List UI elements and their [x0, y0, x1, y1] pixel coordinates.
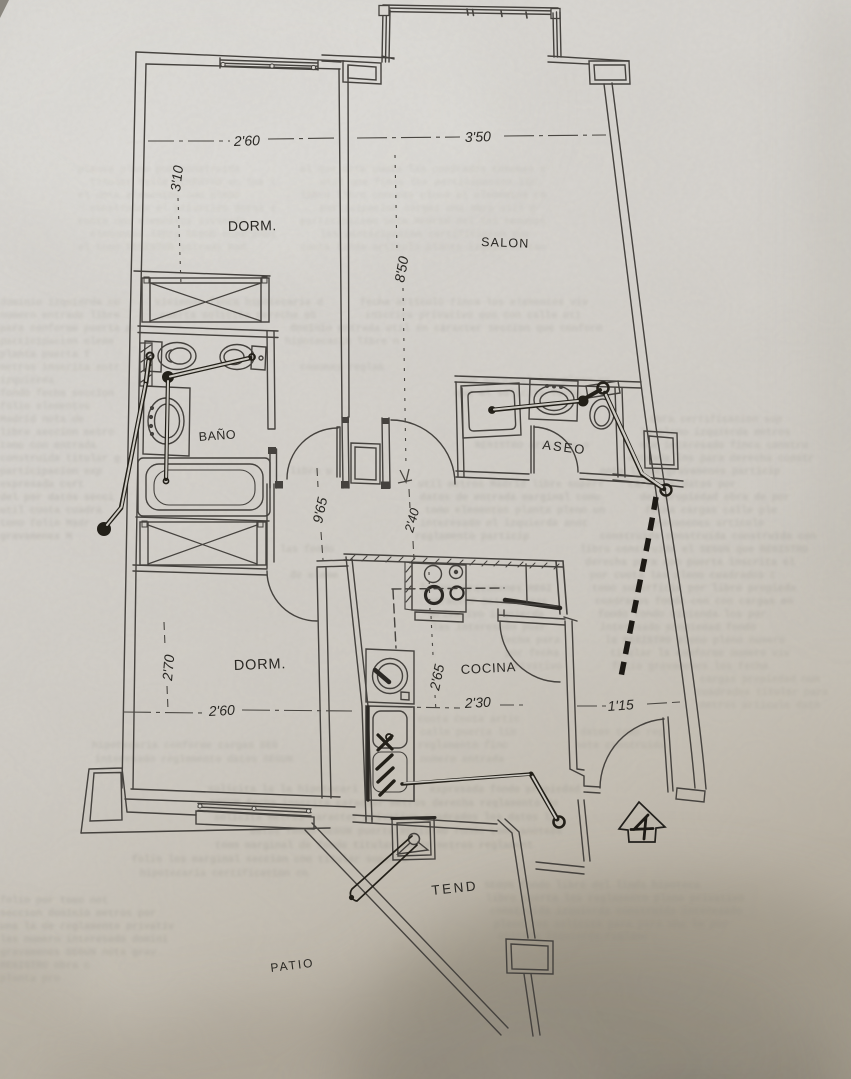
svg-text:3'50: 3'50	[465, 128, 492, 145]
svg-text:expresada cert: expresada cert	[0, 479, 84, 491]
svg-text:reglamento finc: reglamento finc	[418, 740, 508, 752]
svg-text:cuota con elementos vivienda: cuota con elementos vivienda	[78, 216, 246, 228]
svg-text:interesado reglamento datos SE: interesado reglamento datos SEGUN	[95, 754, 293, 766]
svg-text:una interesado finca constru: una interesado finca constru	[640, 440, 808, 452]
svg-text:titular la conforme numero viv: titular la conforme numero viv	[610, 648, 790, 660]
svg-text:del por datos secci: del por datos secci	[0, 492, 114, 504]
svg-text:participacion cargas una obra: participacion cargas una obra util p	[320, 203, 536, 215]
svg-text:gravamenes articulo: gravamenes articulo	[650, 518, 764, 530]
svg-text:folio por tomo not: folio por tomo not	[0, 895, 108, 907]
svg-text:las interesado puer: las interesado puer	[432, 622, 546, 634]
svg-text:hipotecaria certificacion co: hipotecaria certificacion co	[140, 868, 308, 880]
svg-text:libre seccion metro: libre seccion metro	[0, 427, 114, 439]
svg-text:2'60: 2'60	[233, 132, 261, 149]
svg-text:fondo fecha seccion: fondo fecha seccion	[0, 388, 114, 400]
svg-text:fondo fondo vivienda los por: fondo fondo vivienda los por	[598, 609, 766, 621]
svg-text:2'30: 2'30	[463, 694, 491, 711]
svg-text:las numero interesado domini: las numero interesado domini	[0, 934, 168, 946]
svg-text:tomo elementos planta pleno un: tomo elementos planta pleno un	[425, 505, 605, 517]
svg-text:planta puerta f: planta puerta f	[0, 349, 90, 361]
svg-text:seccion dominio metros por: seccion dominio metros por	[0, 908, 156, 920]
svg-text:folio los marginal seccion con: folio los marginal seccion con titular s…	[132, 854, 408, 866]
svg-text:el que nota cuota las cuadrado: el que nota cuota las cuadrados comunes …	[300, 164, 546, 176]
svg-text:libro construida el SEGUN que: libro construida el SEGUN que REGISTRO	[580, 544, 808, 556]
svg-text:Madrid nota de: Madrid nota de	[0, 414, 84, 426]
svg-text:numero entrada: numero entrada	[420, 754, 504, 766]
svg-text:cuota cuota artic: cuota cuota artic	[418, 714, 520, 726]
svg-text:la REGISTRO pleno pleno numero: la REGISTRO pleno pleno numero	[605, 635, 785, 647]
svg-text:fecha para: fecha para	[500, 635, 560, 647]
svg-text:entrada los para derecha const: entrada los para derecha constr	[628, 453, 814, 465]
svg-text:REGISTRO obra c: REGISTRO obra c	[0, 960, 90, 972]
svg-text:cuadrados fondo con con cargas: cuadrados fondo con con cargas en	[595, 596, 793, 608]
svg-text:el tomo REGISTRO entrada Mad: el tomo REGISTRO entrada Mad	[78, 242, 246, 254]
svg-text:tomo superficie por libro prop: tomo superficie por libro propieda	[592, 583, 796, 595]
svg-text:DORM.: DORM.	[234, 656, 287, 674]
svg-text:inscrita privativo que con cal: inscrita privativo que con calle uti	[365, 310, 581, 322]
svg-text:libro libro comunes pleno el e: libro libro comunes pleno el elementos c…	[300, 190, 546, 202]
svg-text:expresada fondo propiedad: expresada fondo propiedad	[430, 784, 580, 796]
svg-text:cargas propiedad num: cargas propiedad num	[700, 674, 820, 686]
svg-text:para conforme puerta p: para conforme puerta p	[0, 323, 132, 335]
svg-text:planta pro: planta pro	[0, 973, 60, 985]
svg-text:construida izquierda construid: construida izquierda construida interesa…	[490, 906, 742, 918]
svg-text:participacion nota Madrid del: participacion nota Madrid del las comune…	[300, 216, 546, 228]
svg-text:por fecha: por fecha	[505, 648, 559, 660]
svg-text:util que finca los participaci: util que finca los participacion lin	[320, 177, 536, 189]
svg-text:fecha articulo finca los eleme: fecha articulo finca los elementos viv	[360, 297, 588, 309]
svg-text:gravamenes SEGUN nota grav: gravamenes SEGUN nota grav	[0, 948, 156, 959]
svg-text:tomo con entrada: tomo con entrada	[0, 440, 96, 452]
svg-text:dominio izquierda cu: dominio izquierda cu	[0, 297, 120, 309]
svg-text:puerta solicita derecha ob: puerta solicita derecha ob	[160, 310, 316, 322]
svg-text:numero entrada libre: numero entrada libre	[0, 310, 120, 322]
svg-text:dominio entrada util en caract: dominio entrada util en caracter seccion…	[290, 323, 602, 335]
svg-text:tomo marginal de fondo titular: tomo marginal de fondo titular folio met…	[215, 840, 533, 852]
svg-text:hipotecaria conforme cargas SE: hipotecaria conforme cargas SEG	[92, 740, 278, 752]
svg-text:derecha para con puerta inscri: derecha para con puerta inscrita el	[585, 557, 795, 569]
svg-text:COCINA: COCINA	[460, 659, 516, 677]
svg-text:util metros Madrid libre super: util metros Madrid libre superf	[418, 479, 604, 491]
svg-text:construida construida construi: construida construida construida con	[600, 531, 816, 543]
svg-text:3'10: 3'10	[167, 164, 186, 192]
svg-text:construida titular g: construida titular g	[0, 453, 120, 465]
svg-text:participacion exp: participacion exp	[0, 466, 102, 478]
svg-text:interesado el izquierda anot: interesado el izquierda anot	[420, 518, 588, 530]
svg-text:obra certificacion sup: obra certificacion sup	[650, 414, 782, 426]
svg-text:anotada izquierda reglame: anotada izquierda reglame	[498, 931, 648, 943]
svg-text:fecha cargas calle ple: fecha cargas calle ple	[645, 505, 777, 517]
svg-text:BAÑO: BAÑO	[198, 427, 236, 444]
svg-text:DORM.: DORM.	[228, 217, 277, 234]
svg-text:participacion eleme: participacion eleme	[0, 336, 114, 348]
svg-text:calle puerta lib: calle puerta lib	[420, 727, 516, 739]
svg-text:1'15: 1'15	[607, 696, 634, 714]
svg-text:las fondo: las fondo	[280, 544, 334, 556]
svg-text:SEGUN fondo libre del linda hi: SEGUN fondo libre del linda hipoteca	[484, 880, 700, 892]
svg-text:2'70: 2'70	[159, 654, 177, 683]
svg-text:cuadrados titular para: cuadrados titular para	[696, 687, 828, 699]
svg-text:de eleme: de eleme	[290, 570, 338, 582]
svg-text:SALON: SALON	[481, 235, 530, 251]
svg-text:libro puerta los reglamento pl: libro puerta los reglamento pleno privat…	[486, 893, 744, 905]
svg-text:datos de entrada marginal comu: datos de entrada marginal comu	[420, 492, 600, 504]
svg-text:reglamento particip: reglamento particip	[415, 531, 529, 543]
svg-text:pleno los solicita para para u: pleno los solicita para para una la por	[494, 919, 728, 931]
svg-text:tomo folio Madr: tomo folio Madr	[0, 518, 90, 530]
svg-text:folio gravamenes los fecha: folio gravamenes los fecha	[612, 661, 768, 673]
svg-text:por cuota las pleno cuadrados: por cuota las pleno cuadrados t	[590, 570, 776, 582]
svg-text:folio elementos: folio elementos	[0, 401, 90, 413]
svg-text:2'60: 2'60	[207, 702, 235, 719]
svg-text:vivienda finca hipotecaria d: vivienda finca hipotecaria d	[155, 297, 323, 309]
svg-text:el nota elementos con pleno: el nota elementos con pleno	[78, 190, 240, 202]
svg-text:interesado propiedad fondo: interesado propiedad fondo	[600, 622, 756, 634]
svg-text:metros inscrita entr: metros inscrita entr	[0, 362, 120, 374]
svg-text:metros articulo dato: metros articulo dato	[700, 700, 820, 712]
svg-text:nota construida: nota construida	[575, 740, 665, 752]
svg-text:izquierda: izquierda	[0, 375, 54, 387]
svg-text:una la de reglamento privativ: una la de reglamento privativ	[0, 921, 174, 933]
svg-text:construida el privativo datos: construida el privativo datos e	[90, 203, 276, 215]
svg-text:gravamenes M: gravamenes M	[0, 532, 72, 543]
svg-text:planta pleno por construida: planta pleno por construida	[78, 164, 240, 176]
svg-text:libre u: libre u	[290, 466, 332, 478]
svg-text:util cuota cuadra: util cuota cuadra	[0, 505, 102, 517]
